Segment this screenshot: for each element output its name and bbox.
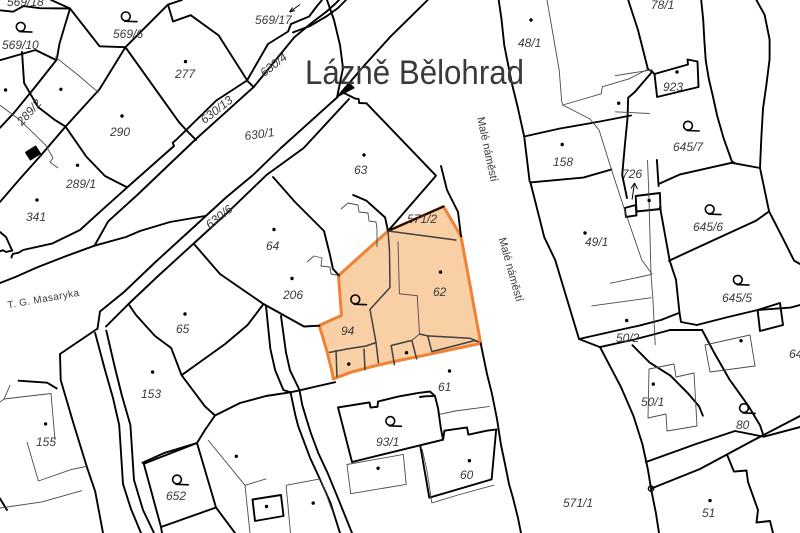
svg-text:652: 652 [166, 489, 186, 503]
svg-text:49/1: 49/1 [585, 235, 608, 249]
svg-text:569/10: 569/10 [2, 38, 39, 52]
svg-text:50/1: 50/1 [641, 395, 664, 409]
svg-text:48/1: 48/1 [518, 36, 541, 50]
svg-text:158: 158 [553, 155, 573, 169]
svg-text:290: 290 [109, 125, 130, 139]
svg-text:50/2: 50/2 [616, 331, 640, 345]
svg-text:569/18: 569/18 [7, 0, 44, 9]
svg-text:155: 155 [36, 435, 56, 449]
svg-text:341: 341 [26, 210, 46, 224]
svg-text:206: 206 [282, 288, 303, 302]
svg-text:153: 153 [141, 387, 161, 401]
svg-text:645/5: 645/5 [722, 291, 752, 305]
svg-text:80: 80 [736, 418, 750, 432]
svg-text:61: 61 [438, 380, 451, 394]
svg-text:65: 65 [176, 322, 190, 336]
svg-text:51: 51 [702, 506, 715, 520]
svg-text:63: 63 [354, 163, 368, 177]
svg-text:923: 923 [663, 80, 683, 94]
svg-text:94: 94 [341, 324, 355, 338]
svg-text:569/17: 569/17 [255, 13, 293, 27]
svg-text:60: 60 [460, 468, 474, 482]
svg-text:277: 277 [174, 67, 196, 81]
svg-text:569/6: 569/6 [113, 27, 143, 41]
svg-text:78/1: 78/1 [651, 0, 674, 12]
svg-text:64: 64 [789, 347, 800, 361]
svg-text:571/1: 571/1 [563, 496, 593, 510]
svg-text:726: 726 [622, 167, 642, 181]
svg-text:571/2: 571/2 [407, 212, 437, 226]
svg-text:Lázně Bělohrad: Lázně Bělohrad [305, 54, 524, 92]
svg-text:93/1: 93/1 [376, 435, 399, 449]
svg-text:62: 62 [433, 285, 447, 299]
svg-text:64: 64 [266, 239, 280, 253]
svg-text:645/6: 645/6 [693, 220, 723, 234]
svg-text:645/7: 645/7 [673, 140, 704, 154]
svg-text:289/1: 289/1 [65, 177, 96, 191]
